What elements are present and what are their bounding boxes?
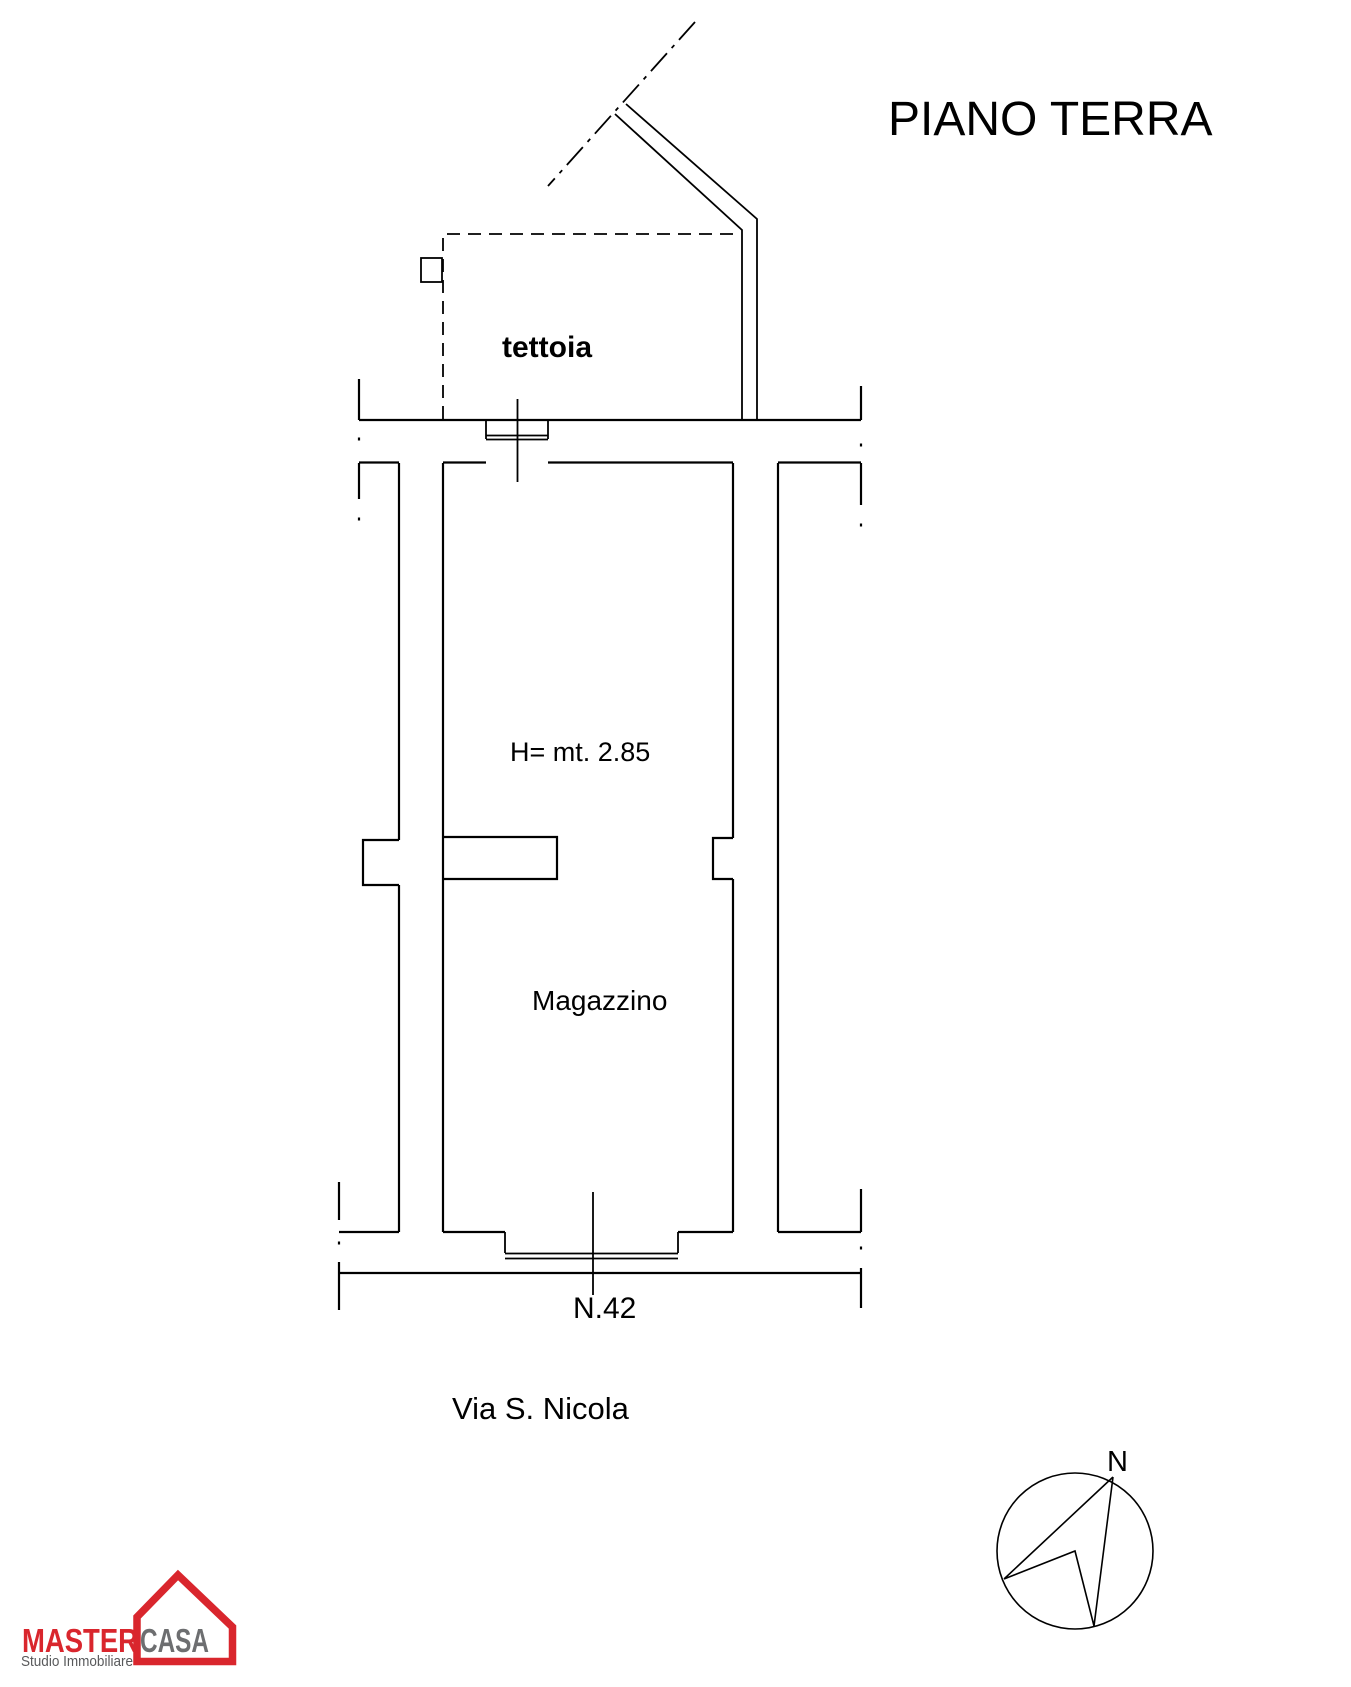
floor-plan-page: PIANO TERRA tettoia	[0, 0, 1351, 1687]
street-name-label: Via S. Nicola	[452, 1391, 630, 1426]
room-label: Magazzino	[532, 985, 667, 1016]
canopy-pillar	[421, 258, 442, 282]
top-door	[486, 399, 548, 482]
floor-plan-drawing: tettoia H= mt. 2.85	[339, 22, 861, 1426]
page-title: PIANO TERRA	[888, 93, 1213, 146]
bottom-door-leaf	[505, 1232, 678, 1259]
street-number-label: N.42	[573, 1292, 636, 1325]
compass: N	[997, 1446, 1153, 1629]
canopy-fence-outer-line	[626, 104, 757, 420]
agency-logo: MASTER CASA Studio Immobiliare	[21, 1575, 233, 1670]
boundary-dashdot-line	[548, 22, 695, 186]
walls	[339, 379, 861, 1310]
left-wall-lines	[359, 463, 443, 1232]
logo-brand-secondary: CASA	[140, 1622, 209, 1659]
floor-plan-canvas: PIANO TERRA tettoia	[0, 0, 1351, 1687]
height-annotation: H= mt. 2.85	[510, 737, 650, 767]
logo-tagline: Studio Immobiliare	[21, 1653, 133, 1670]
bottom-door	[505, 1192, 678, 1295]
compass-needle	[1004, 1477, 1113, 1626]
canopy-fence-inner-line	[615, 114, 742, 420]
canopy-label: tettoia	[502, 331, 592, 364]
canopy: tettoia	[421, 104, 757, 420]
compass-north-label: N	[1107, 1446, 1128, 1478]
bottom-wall-lines	[339, 1182, 861, 1310]
right-wall-lines	[713, 463, 861, 1308]
middle-wall-lines	[443, 837, 557, 879]
top-wall-lines	[359, 379, 861, 463]
canopy-dashed-outline	[443, 234, 740, 419]
wall-break-dots	[339, 438, 861, 1250]
